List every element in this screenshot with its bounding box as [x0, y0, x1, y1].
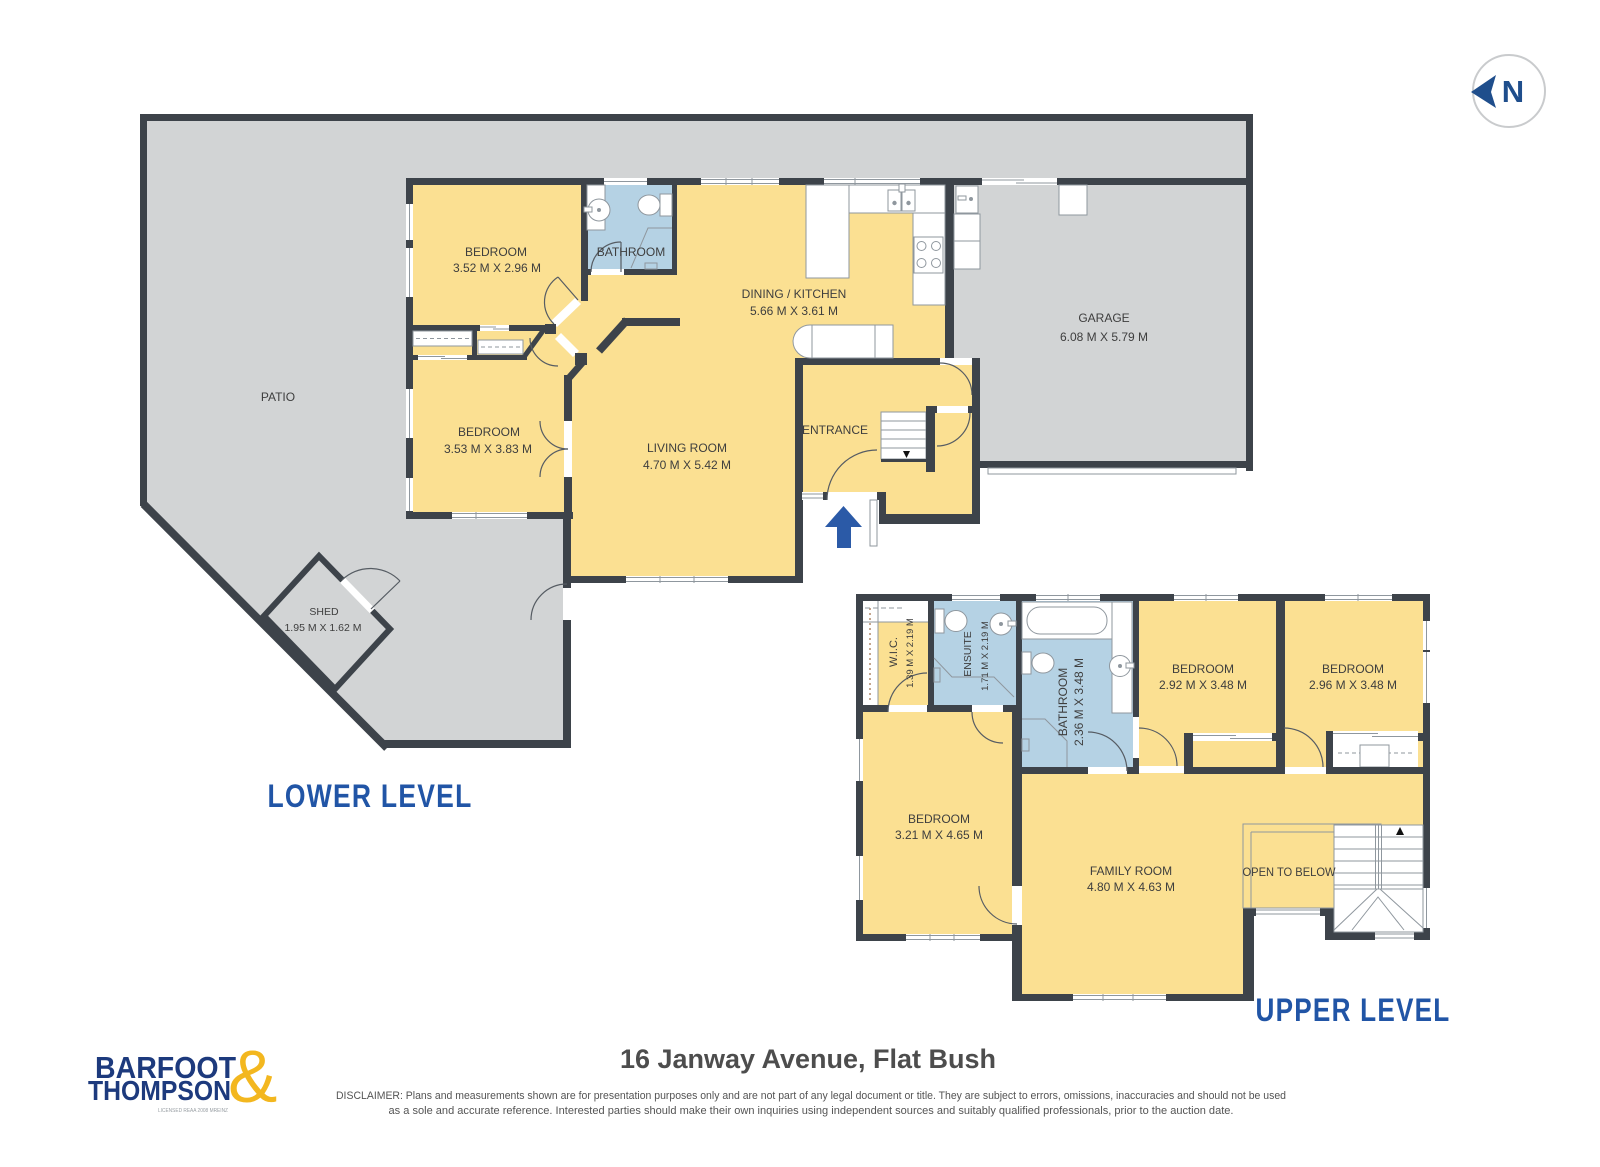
svg-text:ENSUITE: ENSUITE — [962, 631, 974, 677]
svg-text:4.80 M X 4.63 M: 4.80 M X 4.63 M — [1087, 880, 1175, 894]
svg-text:W.I.C.: W.I.C. — [888, 637, 900, 667]
svg-text:ENTRANCE: ENTRANCE — [802, 423, 868, 437]
svg-text:FAMILY ROOM: FAMILY ROOM — [1090, 864, 1172, 878]
svg-text:BATHROOM: BATHROOM — [1056, 668, 1070, 736]
svg-text:BEDROOM: BEDROOM — [1172, 662, 1234, 676]
svg-text:3.21 M X 4.65 M: 3.21 M X 4.65 M — [895, 828, 983, 842]
svg-text:UPPER LEVEL: UPPER LEVEL — [1256, 992, 1451, 1028]
svg-text:GARAGE: GARAGE — [1078, 311, 1129, 325]
svg-text:&: & — [228, 1035, 277, 1118]
svg-text:4.70 M X 5.42 M: 4.70 M X 5.42 M — [643, 458, 731, 472]
svg-text:5.66 M X 3.61 M: 5.66 M X 3.61 M — [750, 304, 838, 318]
svg-text:LOWER LEVEL: LOWER LEVEL — [268, 778, 473, 814]
svg-text:PATIO: PATIO — [261, 390, 295, 404]
svg-text:6.08 M X 5.79 M: 6.08 M X 5.79 M — [1060, 330, 1148, 344]
svg-text:LICENSED REAA 2008 MREINZ: LICENSED REAA 2008 MREINZ — [158, 1108, 229, 1114]
svg-text:3.52 M X 2.96 M: 3.52 M X 2.96 M — [453, 261, 541, 275]
svg-text:BATHROOM: BATHROOM — [597, 245, 665, 259]
svg-text:BEDROOM: BEDROOM — [1322, 662, 1384, 676]
svg-text:BEDROOM: BEDROOM — [908, 812, 970, 826]
svg-text:SHED: SHED — [309, 606, 339, 618]
svg-text:LIVING ROOM: LIVING ROOM — [647, 441, 727, 455]
svg-text:BEDROOM: BEDROOM — [465, 245, 527, 259]
svg-text:1.39 M X 2.19 M: 1.39 M X 2.19 M — [905, 618, 916, 688]
svg-text:N: N — [1502, 74, 1524, 109]
svg-text:3.53 M X 3.83 M: 3.53 M X 3.83 M — [444, 442, 532, 456]
svg-text:1.71 M X 2.19 M: 1.71 M X 2.19 M — [980, 621, 991, 691]
svg-text:2.36 M X 3.48 M: 2.36 M X 3.48 M — [1072, 658, 1086, 746]
svg-text:16 Janway Avenue, Flat Bush: 16 Janway Avenue, Flat Bush — [620, 1044, 996, 1074]
svg-text:OPEN TO BELOW: OPEN TO BELOW — [1243, 867, 1336, 879]
svg-text:2.92 M X 3.48 M: 2.92 M X 3.48 M — [1159, 678, 1247, 692]
svg-text:1.95 M X 1.62 M: 1.95 M X 1.62 M — [284, 622, 361, 634]
svg-text:as a sole and accurate referen: as a sole and accurate reference. Intere… — [389, 1105, 1234, 1117]
svg-text:DINING / KITCHEN: DINING / KITCHEN — [742, 287, 847, 301]
svg-text:BEDROOM: BEDROOM — [458, 425, 520, 439]
svg-text:DISCLAIMER: Plans and measurem: DISCLAIMER: Plans and measurements shown… — [336, 1090, 1286, 1102]
svg-text:2.96 M X 3.48 M: 2.96 M X 3.48 M — [1309, 678, 1397, 692]
svg-text:THOMPSON: THOMPSON — [88, 1075, 231, 1106]
